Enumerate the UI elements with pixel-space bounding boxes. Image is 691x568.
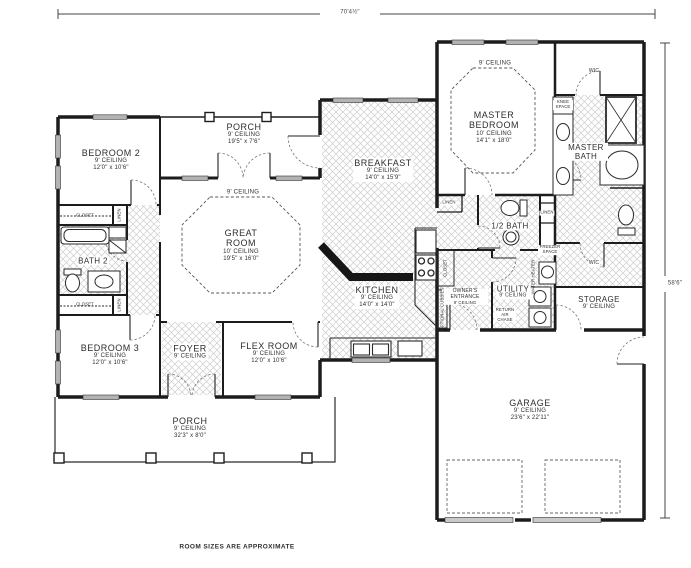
toilet-tank bbox=[618, 228, 635, 235]
porch-bottom-size: 32'3" x 8'0" bbox=[172, 433, 207, 440]
great-room-label: GREAT ROOM 10' CEILING 19'5" x 16'0" bbox=[215, 228, 267, 262]
bedroom3-size: 12'0" x 10'6" bbox=[81, 360, 140, 367]
floor-plan: 70'4½" 58'6" BEDROOM 2 9' CEILING 12'0" … bbox=[0, 0, 691, 568]
porch-top-ceiling: 9' CEILING bbox=[226, 132, 261, 139]
breakfast-label: BREAKFAST 9' CEILING 14'0" x 15'9" bbox=[353, 158, 413, 182]
half-bath-label: 1/2 BATH bbox=[490, 221, 529, 230]
sink bbox=[557, 168, 570, 185]
garage-ceiling: 9' CEILING bbox=[509, 408, 551, 415]
optional-cubbies-label: OPTIONAL CUBBIES bbox=[440, 287, 445, 330]
kitchen-name: KITCHEN bbox=[354, 285, 399, 295]
kitchen-ceiling: 9' CEILING bbox=[354, 295, 399, 302]
toilet-tank bbox=[520, 200, 527, 216]
master-bedroom-size: 14'1" x 18'0" bbox=[462, 137, 526, 144]
owners-entrance-name: OWNER'S ENTRANCE bbox=[442, 289, 488, 301]
bedroom-hall-floor bbox=[127, 205, 160, 315]
garage-door-opening bbox=[533, 518, 601, 523]
bedroom2-size: 12'0" x 10'6" bbox=[82, 165, 141, 172]
dishwasher bbox=[398, 341, 422, 356]
flex-room-label: FLEX ROOM 9' CEILING 12'0" x 10'6" bbox=[240, 341, 298, 365]
porch-bottom-name: PORCH bbox=[172, 416, 207, 426]
bedroom2-label: BEDROOM 2 9' CEILING 12'0" x 10'6" bbox=[82, 148, 141, 172]
master-bedroom-label: MASTER BEDROOM 10' CEILING 14'1" x 18'0" bbox=[462, 110, 526, 144]
overall-depth-dimension: 58'6" bbox=[668, 281, 682, 288]
toilet bbox=[66, 274, 80, 292]
porch-top-size: 19'5" x 7'6" bbox=[226, 139, 261, 146]
porch-bottom-ceiling: 9' CEILING bbox=[172, 426, 207, 433]
sink bbox=[557, 124, 570, 141]
master-bedroom-ceiling-label: 9' CEILING bbox=[479, 61, 511, 68]
porch-top-name: PORCH bbox=[226, 122, 261, 132]
great-room-tray-ceiling-label: 10' CEILING bbox=[215, 248, 267, 255]
linen-hall-bottom-label: LINEN bbox=[118, 298, 123, 311]
master-bedroom-tray-ceiling-label: 10' CEILING bbox=[462, 130, 526, 137]
overall-width-dimension: 70'4½" bbox=[340, 10, 360, 17]
floorplan-drawing bbox=[0, 0, 691, 568]
bedroom2-name: BEDROOM 2 bbox=[82, 148, 141, 158]
refrigerator bbox=[416, 230, 436, 253]
breakfast-ceiling: 9' CEILING bbox=[353, 168, 413, 175]
great-room-size: 19'5" x 16'0" bbox=[215, 255, 267, 262]
breakfast-size: 14'0" x 15'9" bbox=[353, 175, 413, 182]
bedroom3-ceiling: 9' CEILING bbox=[81, 353, 140, 360]
flex-room-ceiling: 9' CEILING bbox=[240, 351, 298, 358]
bedroom3-closet-label: CLOSET bbox=[76, 303, 94, 308]
utility-ceiling: 9' CEILING bbox=[496, 294, 531, 300]
porch-top-label: PORCH 9' CEILING 19'5" x 7'6" bbox=[226, 122, 261, 146]
linen-hall-top-label: LINEN bbox=[118, 208, 123, 221]
dryer bbox=[529, 308, 551, 327]
owners-entrance-ceiling: 9' CEILING bbox=[442, 300, 488, 305]
bedroom2-ceiling: 9' CEILING bbox=[82, 158, 141, 165]
garage-bay-outlines bbox=[447, 460, 620, 513]
flex-room-size: 12'0" x 10'6" bbox=[240, 358, 298, 365]
breakfast-name: BREAKFAST bbox=[353, 158, 413, 168]
great-room-name: GREAT ROOM bbox=[215, 228, 267, 249]
storage-name: STORAGE bbox=[578, 295, 620, 304]
plan-note: ROOM SIZES ARE APPROXIMATE bbox=[179, 543, 294, 550]
toilet bbox=[501, 201, 519, 216]
wic-master-bottom-label: WIC bbox=[588, 261, 600, 267]
garage-name: GARAGE bbox=[509, 398, 551, 408]
linen-master-hall-label: LINEN bbox=[441, 201, 456, 206]
owners-entrance-label: OWNER'S ENTRANCE 9' CEILING bbox=[442, 289, 488, 305]
wic-master-top-label: WIC bbox=[589, 69, 599, 75]
master-bedroom-name: MASTER BEDROOM bbox=[462, 110, 526, 131]
pantry-closet-label: CLOSET bbox=[444, 259, 449, 277]
pedestal-sink bbox=[503, 229, 519, 245]
foyer-ceiling: 9' CEILING bbox=[172, 354, 208, 361]
garage-label: GARAGE 9' CEILING 23'6" x 22'11" bbox=[509, 398, 551, 422]
storage-ceiling: 9' CEILING bbox=[578, 304, 620, 311]
flex-room-name: FLEX ROOM bbox=[240, 341, 298, 351]
bedroom3-label: BEDROOM 3 9' CEILING 12'0" x 10'6" bbox=[81, 343, 140, 367]
master-bath-name: MASTER BATH bbox=[564, 143, 608, 161]
sink bbox=[95, 275, 113, 288]
foyer-label: FOYER 9' CEILING bbox=[172, 343, 208, 360]
foyer-name: FOYER bbox=[172, 343, 208, 353]
garage-size: 23'6" x 22'11" bbox=[509, 415, 551, 422]
utility-label: UTILITY 9' CEILING bbox=[496, 285, 531, 300]
storage-label: STORAGE 9' CEILING bbox=[578, 295, 620, 311]
bedroom2-closet-label: CLOSET bbox=[76, 214, 94, 219]
freezer-space-label: FREEZER SPACE bbox=[538, 245, 562, 255]
garage-door-opening bbox=[445, 518, 513, 523]
shelf bbox=[109, 227, 126, 238]
porch-bottom-label: PORCH 9' CEILING 32'3" x 8'0" bbox=[172, 416, 207, 440]
master-bath-label: MASTER BATH bbox=[564, 143, 608, 161]
great-room-ceiling-label: 9' CEILING bbox=[227, 190, 259, 197]
kitchen-size: 14'0" x 14'0" bbox=[354, 302, 399, 309]
knee-space-label: KNEE SPACE bbox=[553, 100, 573, 110]
toilet bbox=[619, 205, 634, 225]
linen-half-bath-label: LINEN bbox=[539, 211, 554, 216]
bedroom3-name: BEDROOM 3 bbox=[81, 343, 140, 353]
water-heater-label: WATER HEATER bbox=[532, 260, 537, 295]
bath2-label: BATH 2 bbox=[77, 256, 109, 265]
return-air-label: RETURN AIR CHASE bbox=[494, 308, 516, 322]
kitchen-label: KITCHEN 9' CEILING 14'0" x 14'0" bbox=[354, 285, 399, 309]
